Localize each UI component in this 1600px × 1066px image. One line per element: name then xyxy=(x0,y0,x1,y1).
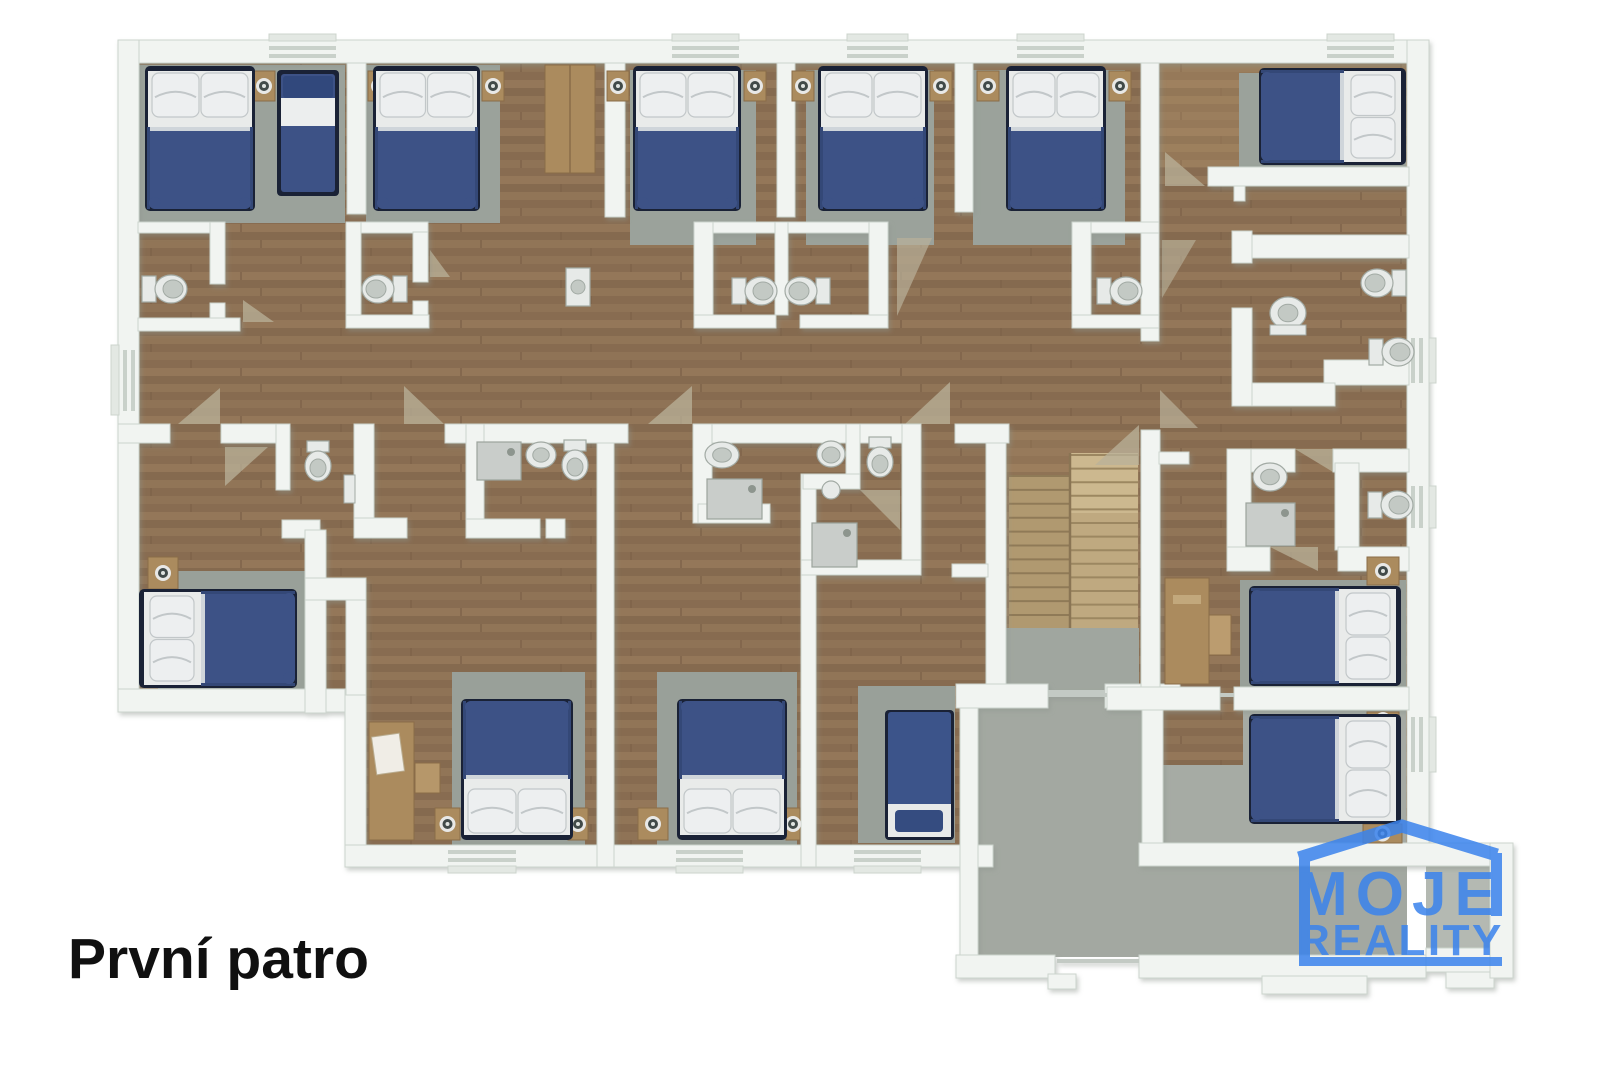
svg-text:REALITY: REALITY xyxy=(1298,916,1504,965)
svg-text:První patro: První patro xyxy=(68,927,369,991)
